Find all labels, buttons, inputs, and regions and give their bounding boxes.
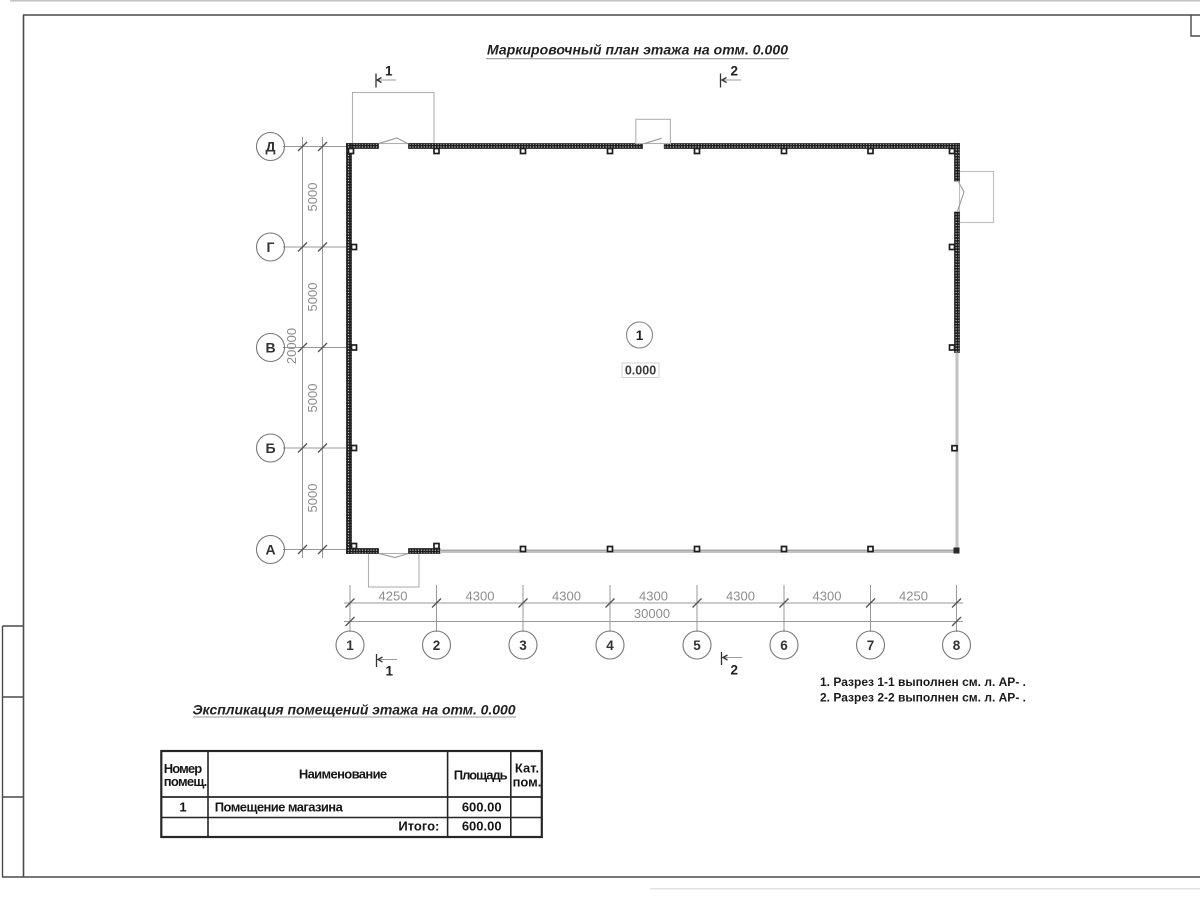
svg-text:5000: 5000 xyxy=(305,283,320,312)
svg-text:Наименование: Наименование xyxy=(299,766,387,781)
svg-text:5000: 5000 xyxy=(305,183,320,212)
svg-text:2: 2 xyxy=(731,63,739,78)
svg-text:Кат.: Кат. xyxy=(515,761,539,776)
svg-text:2. Разрез 2-2 выполнен см. л.: 2. Разрез 2-2 выполнен см. л. АР- . xyxy=(820,691,1026,705)
svg-text:Итого:: Итого: xyxy=(398,819,439,834)
svg-text:4300: 4300 xyxy=(466,589,495,604)
svg-text:Маркировочный план этажа на от: Маркировочный план этажа на отм. 0.000 xyxy=(487,42,788,58)
svg-text:пом.: пом. xyxy=(513,775,542,790)
svg-text:3: 3 xyxy=(519,638,527,653)
svg-text:5: 5 xyxy=(693,638,701,653)
svg-text:4250: 4250 xyxy=(379,589,408,604)
svg-text:5000: 5000 xyxy=(305,484,320,513)
svg-text:помещ.: помещ. xyxy=(164,774,208,789)
svg-text:6: 6 xyxy=(780,638,788,653)
svg-text:4300: 4300 xyxy=(552,589,581,604)
svg-text:30000: 30000 xyxy=(634,606,670,621)
svg-text:В: В xyxy=(265,340,275,356)
svg-text:0.000: 0.000 xyxy=(625,364,656,378)
svg-text:1: 1 xyxy=(179,800,186,815)
svg-text:600.00: 600.00 xyxy=(462,800,502,815)
svg-text:1: 1 xyxy=(636,328,644,343)
svg-text:1: 1 xyxy=(346,638,354,653)
svg-text:Б: Б xyxy=(265,440,275,456)
svg-text:2: 2 xyxy=(731,663,739,678)
svg-text:Площадь: Площадь xyxy=(454,768,508,783)
svg-text:А: А xyxy=(265,542,275,558)
svg-text:1. Разрез 1-1 выполнен см. л.: 1. Разрез 1-1 выполнен см. л. АР- . xyxy=(820,675,1026,689)
svg-text:7: 7 xyxy=(867,638,875,653)
svg-text:Г: Г xyxy=(267,239,275,255)
svg-text:8: 8 xyxy=(953,638,961,653)
svg-text:5000: 5000 xyxy=(305,384,320,413)
svg-text:4300: 4300 xyxy=(726,589,755,604)
svg-text:4300: 4300 xyxy=(813,589,842,604)
svg-text:1: 1 xyxy=(386,664,394,679)
svg-text:Экспликация помещений этажа на: Экспликация помещений этажа на отм. 0.00… xyxy=(193,701,516,717)
svg-text:Д: Д xyxy=(266,139,276,155)
svg-text:Помещение магазина: Помещение магазина xyxy=(215,800,344,815)
svg-text:20000: 20000 xyxy=(284,328,299,364)
svg-text:600.00: 600.00 xyxy=(462,819,502,834)
svg-text:4250: 4250 xyxy=(899,589,928,604)
svg-text:1: 1 xyxy=(385,63,393,78)
svg-text:4300: 4300 xyxy=(639,589,668,604)
svg-text:2: 2 xyxy=(433,638,441,653)
svg-text:4: 4 xyxy=(606,638,614,653)
